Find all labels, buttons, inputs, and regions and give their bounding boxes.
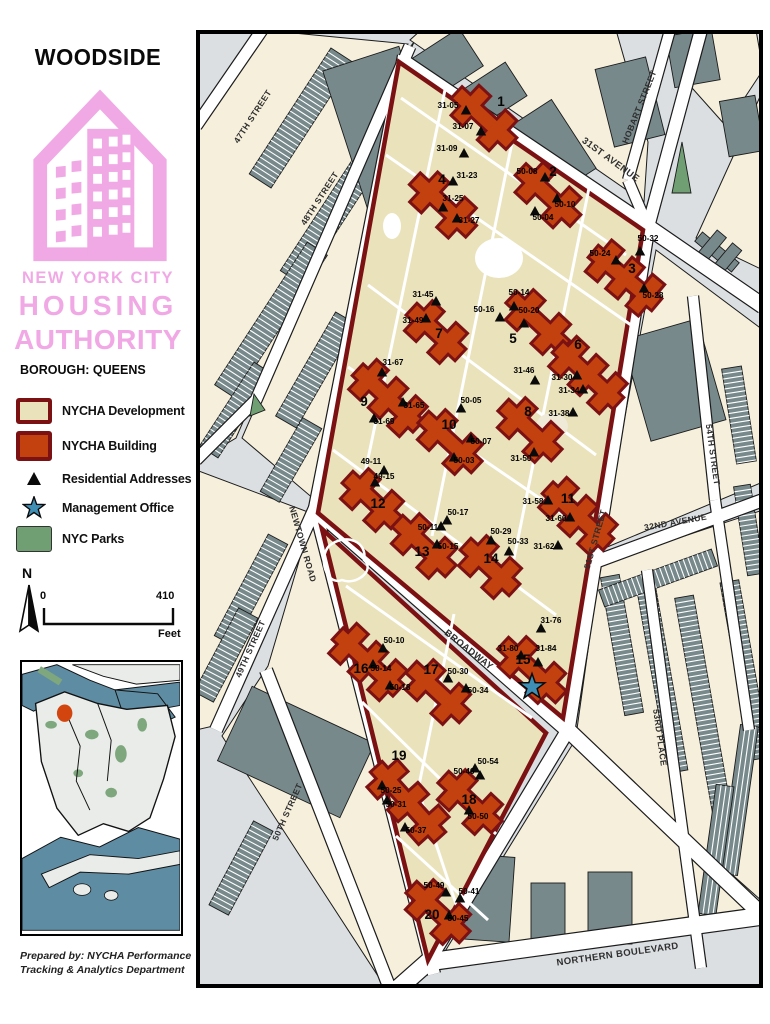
building-number: 5 [509,331,517,346]
building-number: 1 [497,94,505,109]
legend-label: NYCHA Building [62,439,157,453]
north-arrow-icon: N [16,565,42,638]
address-label: 50-54 [478,757,499,766]
prepared-by-caption: Prepared by: NYCHA Performance Tracking … [20,950,191,977]
building-number: 2 [549,164,557,179]
building-number: 13 [414,544,430,559]
building-number: 7 [435,326,443,341]
development-swatch-icon [16,398,52,424]
address-label: 31-27 [459,216,480,225]
legend-item-office: Management Office [16,497,196,519]
legend: NYCHA DevelopmentNYCHA BuildingResidenti… [16,398,196,559]
address-label: 31-49 [403,316,424,325]
map: 31-0531-0731-0950-0850-1050-0450-2450-32… [196,30,763,988]
address-label: 31-60 [546,514,567,523]
residential-triangle-icon [16,468,52,490]
address-label: 50-24 [590,249,611,258]
address-label: 31-23 [457,171,478,180]
address-label: 31-50 [511,454,532,463]
legend-item-development: NYCHA Development [16,398,196,424]
address-label: 50-29 [491,527,512,536]
legend-label: NYC Parks [62,532,124,546]
building-number: 16 [353,661,369,676]
legend-item-building: NYCHA Building [16,431,196,461]
address-label: 31-34 [559,386,580,395]
address-label: 49-15 [374,472,395,481]
road-bulge [383,213,401,239]
address-label: 50-03 [454,456,475,465]
address-label: 50-37 [406,826,427,835]
address-label: 50-16 [474,305,495,314]
address-label: 50-30 [448,667,469,676]
address-label: 31-62 [534,542,555,551]
building-number: 15 [515,652,531,667]
compass-label: N [22,565,42,581]
legend-item-residential: Residential Addresses [16,468,196,490]
scale-unit-label: Feet [158,628,181,640]
address-label: 50-04 [533,213,554,222]
address-label: 31-38 [549,409,570,418]
address-label: 50-28 [643,291,664,300]
building-number: 14 [483,551,499,566]
address-label: 50-14 [509,288,530,297]
address-label: 50-07 [471,437,492,446]
address-label: 50-25 [381,786,402,795]
address-label: 50-33 [508,537,529,546]
address-label: 31-65 [404,401,425,410]
address-label: 49-11 [361,457,382,466]
building-number: 3 [628,261,636,276]
address-label: 50-50 [468,812,489,821]
building-number: 18 [461,792,477,807]
address-label: 31-84 [536,644,557,653]
address-label: 50-10 [555,200,576,209]
nycha-logo-icon [26,72,174,273]
inset-locator-map [20,660,183,936]
address-label: 31-58 [523,497,544,506]
address-label: 50-05 [461,396,482,405]
legend-label: Management Office [62,501,174,515]
legend-item-parks: NYC Parks [16,526,196,552]
address-label: 50-49 [424,881,445,890]
address-label: 50-34 [468,686,489,695]
address-label: 31-76 [541,616,562,625]
address-label: 50-14 [371,664,392,673]
address-label: 50-32 [638,234,659,243]
building-number: 17 [423,662,438,677]
building-number: 19 [391,748,406,763]
building-number: 11 [561,491,576,506]
scale-start-label: 0 [40,590,46,602]
org-name-line: NEW YORK CITY [0,270,196,287]
building-number: 6 [574,337,582,352]
building-number: 9 [360,394,368,409]
org-name-line: HOUSING [0,292,196,320]
building-number: 10 [441,417,456,432]
address-label: 31-07 [453,122,474,131]
address-label: 31-46 [514,366,535,375]
address-label: 50-41 [459,887,480,896]
building-number: 20 [424,907,439,922]
address-label: 31-45 [413,290,434,299]
building-swatch-icon [16,431,52,461]
address-label: 31-67 [383,358,404,367]
building-number: 4 [438,172,446,187]
address-label: 50-20 [519,306,540,315]
address-label: 50-17 [448,508,469,517]
address-label: 50-10 [384,636,405,645]
address-label: 50-31 [386,800,407,809]
page-title: WOODSIDE [4,44,192,71]
legend-label: NYCHA Development [62,404,185,418]
address-label: 50-15 [438,542,459,551]
address-label: 50-08 [517,167,538,176]
legend-label: Residential Addresses [62,472,191,486]
parks-swatch-icon [16,526,52,552]
address-label: 50-18 [390,683,411,692]
address-label: 50-45 [448,914,469,923]
inholding [475,238,523,278]
development-location-marker [57,704,73,721]
address-label: 31-30 [552,373,573,382]
building-number: 12 [370,496,385,511]
borough-label: BOROUGH: QUEENS [20,363,146,377]
address-label: 31-25 [443,194,464,203]
address-label: 50-46 [454,767,475,776]
org-name-line: AUTHORITY [0,326,196,354]
scale-end-label: 410 [156,590,174,602]
building-number: 8 [524,404,532,419]
address-label: 31-69 [374,417,395,426]
address-label: 50-11 [418,523,439,532]
office-star-icon [16,497,52,519]
address-label: 31-05 [438,101,459,110]
address-label: 31-09 [437,144,458,153]
